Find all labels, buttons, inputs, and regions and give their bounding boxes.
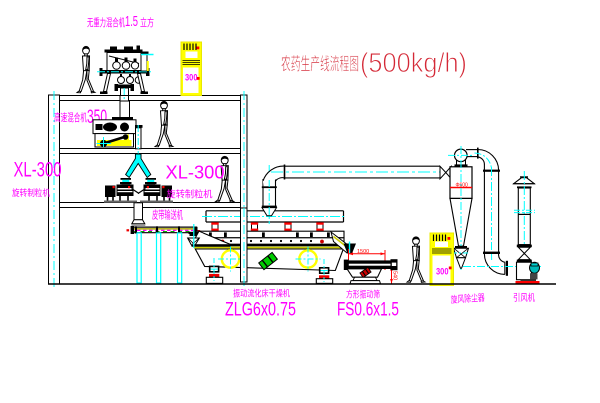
svg-text:农药生产线流程图: 农药生产线流程图 [281, 54, 359, 74]
svg-text:300: 300 [436, 267, 449, 278]
svg-text:1500: 1500 [357, 249, 369, 255]
svg-text:300: 300 [185, 73, 198, 84]
svg-text:FS0.6x1.5: FS0.6x1.5 [337, 299, 399, 321]
svg-text:振动流化床干燥机: 振动流化床干燥机 [233, 288, 290, 299]
svg-text:540: 540 [392, 271, 398, 280]
svg-text:ZLG6x0.75: ZLG6x0.75 [225, 299, 296, 321]
svg-text:旋转制粒机: 旋转制粒机 [167, 189, 213, 201]
svg-text:旋风除尘器: 旋风除尘器 [450, 292, 485, 306]
svg-text:(500kg/h): (500kg/h) [360, 47, 467, 78]
svg-text:XL-300: XL-300 [166, 162, 225, 183]
svg-text:Φ600: Φ600 [456, 183, 469, 189]
svg-text:引风机: 引风机 [513, 292, 535, 304]
svg-text:皮带输送机: 皮带输送机 [152, 208, 183, 222]
svg-text:XL-300: XL-300 [14, 159, 62, 182]
svg-text:旋转制粒机: 旋转制粒机 [12, 187, 50, 198]
